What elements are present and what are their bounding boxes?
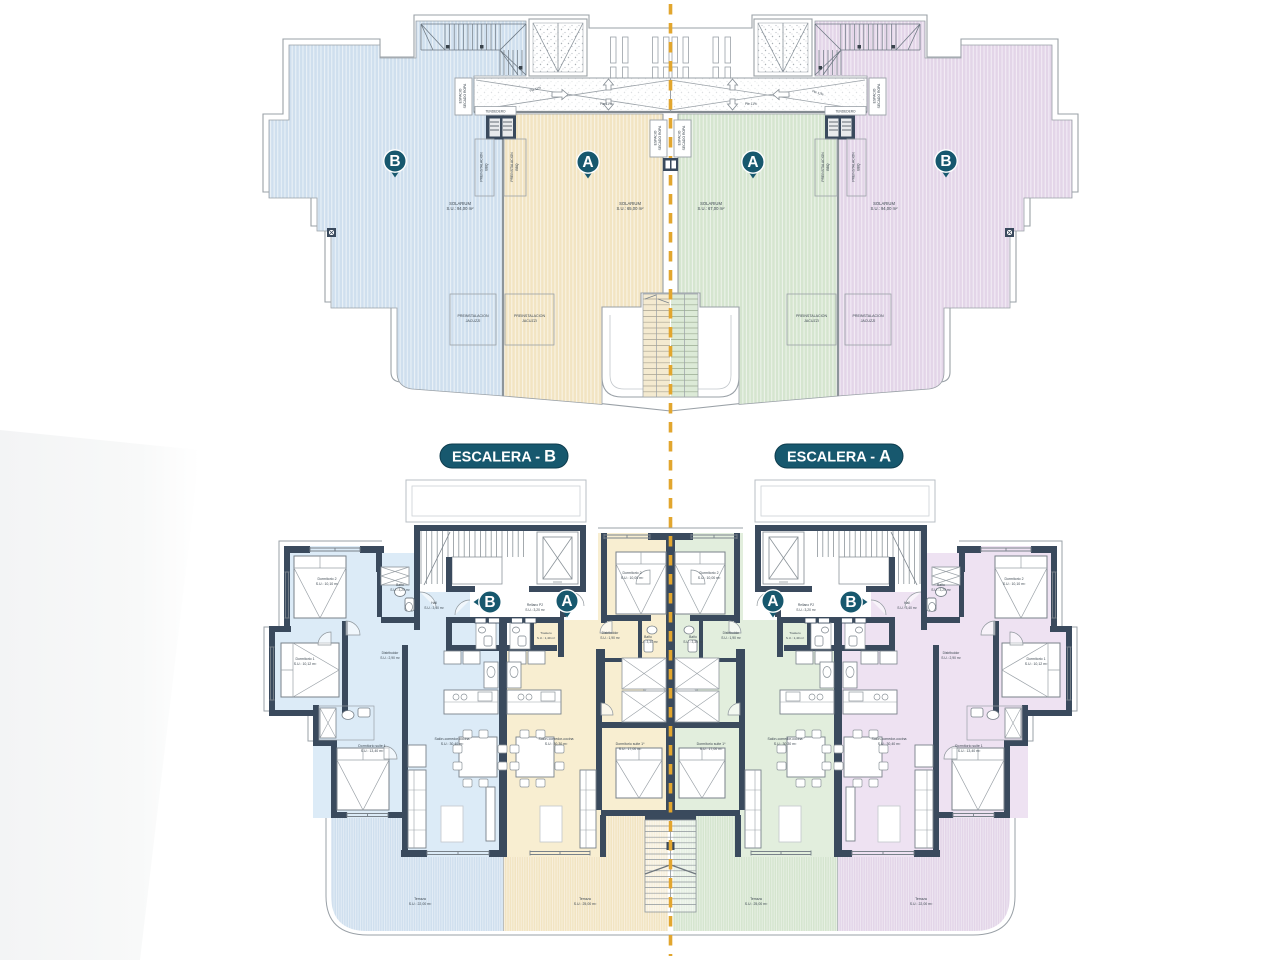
svg-text:BBQ: BBQ bbox=[515, 163, 519, 171]
svg-text:B: B bbox=[940, 153, 951, 170]
svg-text:TENDEDERO: TENDEDERO bbox=[485, 110, 506, 114]
svg-text:Dormitorio 2: Dormitorio 2 bbox=[1004, 577, 1023, 581]
svg-text:Salón-comedor-cocina: Salón-comedor-cocina bbox=[434, 737, 469, 741]
svg-text:S.U.: 67,00 m²: S.U.: 67,00 m² bbox=[698, 206, 726, 211]
svg-text:S.U.: 1,90 m²: S.U.: 1,90 m² bbox=[600, 636, 620, 640]
svg-text:PREINSTALACION: PREINSTALACION bbox=[852, 314, 883, 318]
svg-text:ESCALERA - A: ESCALERA - A bbox=[787, 448, 891, 466]
svg-text:S.U.: 10,12 m²: S.U.: 10,12 m² bbox=[1025, 662, 1048, 666]
svg-text:S.U.: 30,40 m²: S.U.: 30,40 m² bbox=[878, 742, 901, 746]
svg-text:Pte 11%: Pte 11% bbox=[745, 102, 757, 106]
svg-text:ESPACIO: ESPACIO bbox=[459, 88, 463, 103]
svg-text:Distribuidor: Distribuidor bbox=[943, 651, 961, 655]
svg-text:PREINSTALACION: PREINSTALACION bbox=[480, 152, 484, 182]
svg-text:Rellano P2: Rellano P2 bbox=[798, 603, 814, 607]
svg-text:B: B bbox=[389, 153, 400, 170]
svg-text:S.U.: 1,40 m²: S.U.: 1,40 m² bbox=[537, 636, 555, 640]
svg-text:S.U.: 17,00 m²: S.U.: 17,00 m² bbox=[700, 747, 723, 751]
svg-text:Trastero: Trastero bbox=[789, 631, 801, 635]
svg-text:S.U.: 10,00 m²: S.U.: 10,00 m² bbox=[621, 576, 644, 580]
svg-text:PREINSTALACION: PREINSTALACION bbox=[796, 314, 827, 318]
svg-text:PREINSTALACION: PREINSTALACION bbox=[457, 314, 488, 318]
svg-text:SECADO ROPA: SECADO ROPA bbox=[682, 125, 686, 150]
svg-text:A: A bbox=[767, 593, 778, 610]
svg-text:S.U.: 13,40 m²: S.U.: 13,40 m² bbox=[958, 749, 981, 753]
svg-text:S.U.: 22,00 m²: S.U.: 22,00 m² bbox=[910, 902, 933, 906]
svg-text:Rellano P2: Rellano P2 bbox=[527, 603, 543, 607]
svg-text:S.U.: 94,00 m²: S.U.: 94,00 m² bbox=[871, 206, 899, 211]
svg-text:Trastero: Trastero bbox=[540, 631, 552, 635]
svg-text:S.U.: 65,00 m²: S.U.: 65,00 m² bbox=[617, 206, 645, 211]
svg-text:S.U.: 3,20 m²: S.U.: 3,20 m² bbox=[931, 588, 951, 592]
svg-text:Baño: Baño bbox=[689, 635, 697, 639]
svg-text:Dormitorio suite 1º: Dormitorio suite 1º bbox=[616, 742, 645, 746]
svg-text:S.U.: 30,30 m²: S.U.: 30,30 m² bbox=[545, 742, 568, 746]
svg-text:A: A bbox=[582, 154, 593, 171]
svg-text:Dormitorio 2: Dormitorio 2 bbox=[622, 571, 641, 575]
svg-text:Dormitorio 2: Dormitorio 2 bbox=[699, 571, 718, 575]
svg-text:Distribuidor: Distribuidor bbox=[382, 651, 400, 655]
svg-text:S.U.: 10,00 m²: S.U.: 10,00 m² bbox=[698, 576, 721, 580]
svg-text:S.U.: 3,40 m²: S.U.: 3,40 m² bbox=[424, 606, 444, 610]
svg-text:ESCALERA - B: ESCALERA - B bbox=[452, 448, 556, 466]
svg-text:S.U.: 17,00 m²: S.U.: 17,00 m² bbox=[619, 747, 642, 751]
svg-text:Dormitorio suite 1: Dormitorio suite 1 bbox=[955, 744, 982, 748]
svg-text:Distribuidor: Distribuidor bbox=[723, 631, 741, 635]
svg-text:Dormitorio 1: Dormitorio 1 bbox=[1026, 657, 1045, 661]
svg-text:SECADO ROPA: SECADO ROPA bbox=[877, 83, 881, 108]
svg-text:BBQ: BBQ bbox=[485, 163, 489, 171]
svg-text:JACUZZI: JACUZZI bbox=[522, 319, 537, 323]
svg-text:B: B bbox=[845, 594, 856, 611]
svg-text:SECADO ROPA: SECADO ROPA bbox=[658, 125, 662, 150]
svg-text:Terraza: Terraza bbox=[414, 897, 426, 901]
svg-text:A: A bbox=[561, 593, 572, 610]
svg-text:S.U.: 94,00 m²: S.U.: 94,00 m² bbox=[447, 206, 475, 211]
svg-text:S.U.: 3,20 m²: S.U.: 3,20 m² bbox=[390, 588, 410, 592]
svg-text:PREINSTALACION: PREINSTALACION bbox=[821, 152, 825, 182]
svg-text:S.U.: 1,90 m²: S.U.: 1,90 m² bbox=[721, 636, 741, 640]
svg-text:Baño: Baño bbox=[644, 635, 652, 639]
svg-text:Hall: Hall bbox=[904, 601, 910, 605]
svg-text:S.U.: 2,90 m²: S.U.: 2,90 m² bbox=[380, 656, 400, 660]
svg-text:Pte 11%: Pte 11% bbox=[600, 102, 612, 106]
svg-text:S.U.: 2,90 m²: S.U.: 2,90 m² bbox=[941, 656, 961, 660]
svg-text:Dormitorio suite 1º: Dormitorio suite 1º bbox=[697, 742, 726, 746]
svg-text:Terraza: Terraza bbox=[750, 897, 762, 901]
svg-text:Salón-comedor-cocina: Salón-comedor-cocina bbox=[871, 737, 906, 741]
svg-text:Salón-comedor-cocina: Salón-comedor-cocina bbox=[538, 737, 573, 741]
svg-text:S.U.: 3,20 m²: S.U.: 3,20 m² bbox=[525, 608, 545, 612]
svg-text:Dormitorio 2: Dormitorio 2 bbox=[317, 577, 336, 581]
svg-text:JACUZZI: JACUZZI bbox=[466, 319, 481, 323]
svg-text:B: B bbox=[484, 594, 495, 611]
svg-text:BBQ: BBQ bbox=[857, 163, 861, 171]
svg-text:PREINSTALACION: PREINSTALACION bbox=[514, 314, 545, 318]
svg-text:S.U.: 3,30 m²: S.U.: 3,30 m² bbox=[638, 640, 658, 644]
svg-text:S.U.: 1,40 m²: S.U.: 1,40 m² bbox=[786, 636, 804, 640]
svg-text:S.U.: 10,10 m²: S.U.: 10,10 m² bbox=[1003, 582, 1026, 586]
svg-text:S.U.: 25,00 m²: S.U.: 25,00 m² bbox=[745, 902, 768, 906]
svg-text:ESPACIO: ESPACIO bbox=[654, 130, 658, 145]
svg-text:SECADO ROPA: SECADO ROPA bbox=[463, 83, 467, 108]
svg-text:PREINSTALACION: PREINSTALACION bbox=[852, 152, 856, 182]
svg-text:Baño: Baño bbox=[396, 583, 404, 587]
svg-text:Hall: Hall bbox=[431, 601, 437, 605]
svg-text:ESPACIO: ESPACIO bbox=[873, 88, 877, 103]
svg-text:Distribuidor: Distribuidor bbox=[602, 631, 620, 635]
svg-text:TENDEDERO: TENDEDERO bbox=[835, 110, 856, 114]
svg-text:Dormitorio suite 1: Dormitorio suite 1 bbox=[358, 744, 385, 748]
svg-text:A: A bbox=[747, 154, 758, 171]
svg-text:S.U.: 13,40 m²: S.U.: 13,40 m² bbox=[361, 749, 384, 753]
svg-text:S.U.: 3,20 m²: S.U.: 3,20 m² bbox=[796, 608, 816, 612]
svg-text:Terraza: Terraza bbox=[579, 897, 591, 901]
svg-text:S.U.: 10,12 m²: S.U.: 10,12 m² bbox=[294, 662, 317, 666]
svg-text:Baño: Baño bbox=[937, 583, 945, 587]
svg-text:PREINSTALACION: PREINSTALACION bbox=[510, 152, 514, 182]
svg-text:BBQ: BBQ bbox=[826, 163, 830, 171]
svg-text:JACUZZI: JACUZZI bbox=[804, 319, 819, 323]
svg-text:S.U.: 30,30 m²: S.U.: 30,30 m² bbox=[774, 742, 797, 746]
svg-text:S.U.: 3,40 m²: S.U.: 3,40 m² bbox=[897, 606, 917, 610]
svg-text:S.U.: 3,30 m²: S.U.: 3,30 m² bbox=[683, 640, 703, 644]
svg-text:Terraza: Terraza bbox=[915, 897, 927, 901]
svg-text:ESPACIO: ESPACIO bbox=[678, 130, 682, 145]
svg-text:S.U.: 25,00 m²: S.U.: 25,00 m² bbox=[574, 902, 597, 906]
svg-text:Dormitorio 1: Dormitorio 1 bbox=[295, 657, 314, 661]
svg-text:S.U.: 22,00 m²: S.U.: 22,00 m² bbox=[409, 902, 432, 906]
svg-text:S.U.: 10,10 m²: S.U.: 10,10 m² bbox=[316, 582, 339, 586]
svg-text:Salón-comedor-cocina: Salón-comedor-cocina bbox=[767, 737, 802, 741]
svg-text:S.U.: 30,40 m²: S.U.: 30,40 m² bbox=[441, 742, 464, 746]
svg-text:JACUZZI: JACUZZI bbox=[861, 319, 876, 323]
